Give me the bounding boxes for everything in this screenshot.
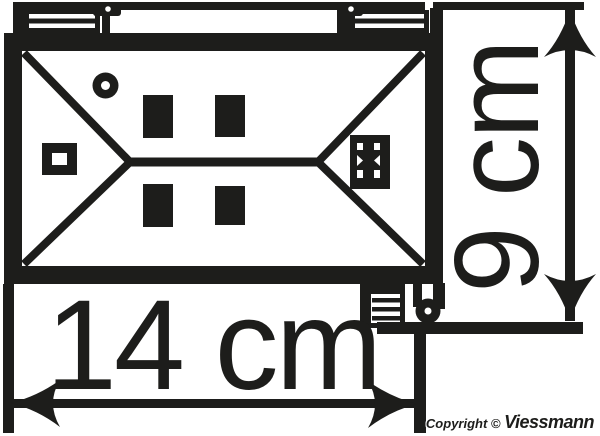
dimension-tick-top bbox=[433, 2, 584, 10]
vertical-dimension-line bbox=[565, 10, 575, 321]
extension-line-left bbox=[3, 284, 14, 433]
skylight-bottom-left bbox=[143, 184, 173, 227]
dimension-tick-bottom bbox=[377, 322, 583, 334]
crest-left-post bbox=[13, 2, 25, 34]
copyright-notice: Copyright © Viessmann bbox=[426, 412, 594, 433]
roof-hatch-vent bbox=[350, 135, 390, 189]
crest-right-finial-hole bbox=[348, 6, 354, 12]
crest-left-finial-hole bbox=[105, 6, 111, 12]
skylight-top-left bbox=[143, 95, 173, 138]
chimney-pipe-circle bbox=[93, 73, 119, 99]
ridge-crest-bar-left-segment bbox=[25, 2, 425, 10]
skylight-top-right bbox=[215, 95, 245, 137]
copyright-prefix: Copyright © bbox=[426, 416, 504, 431]
width-dimension-label: 14 cm bbox=[40, 281, 385, 411]
roof-access-square bbox=[47, 148, 72, 170]
extension-line-right bbox=[414, 331, 426, 433]
skylight-bottom-right bbox=[215, 186, 245, 225]
height-dimension-label: 9 cm bbox=[432, 32, 562, 302]
diagram-canvas: 14 cm 9 cm Copyright © Viessmann bbox=[0, 0, 600, 436]
brand-logo-text: Viessmann bbox=[504, 412, 594, 432]
